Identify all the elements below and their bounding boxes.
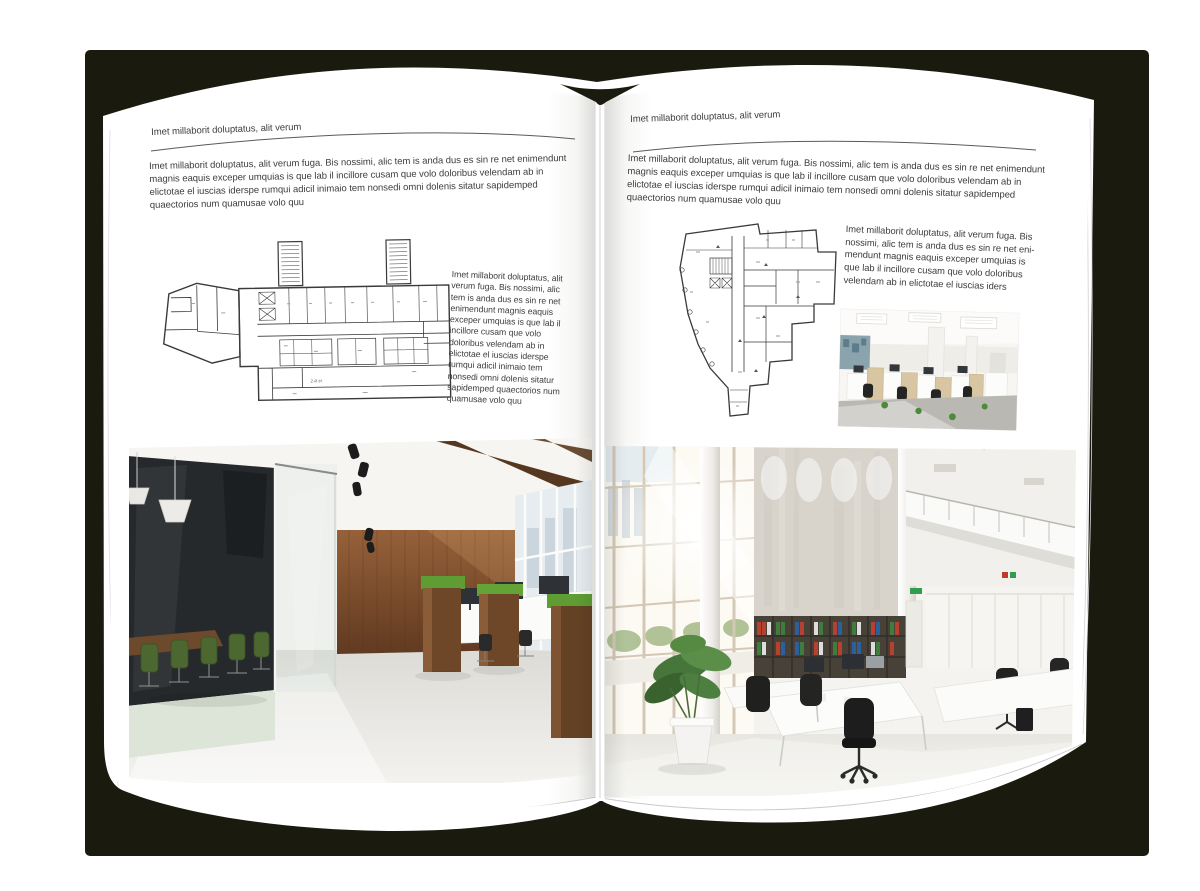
- magazine-spread-mockup: 2-й эт: [0, 0, 1200, 891]
- right-office-photo: [604, 436, 1078, 796]
- left-page-side-text: Imet millaborit doluptatus, alit verum f…: [447, 269, 573, 409]
- small-office-photo: [838, 309, 1019, 430]
- right-page-side-text: Imet millaborit doluptatus, alit verum f…: [843, 223, 1043, 295]
- left-page-intro-paragraph: Imet millaborit doluptatus, alit verum f…: [149, 152, 576, 212]
- left-office-photo: [127, 438, 595, 783]
- floor-plan-caption: 2-й эт: [310, 377, 322, 383]
